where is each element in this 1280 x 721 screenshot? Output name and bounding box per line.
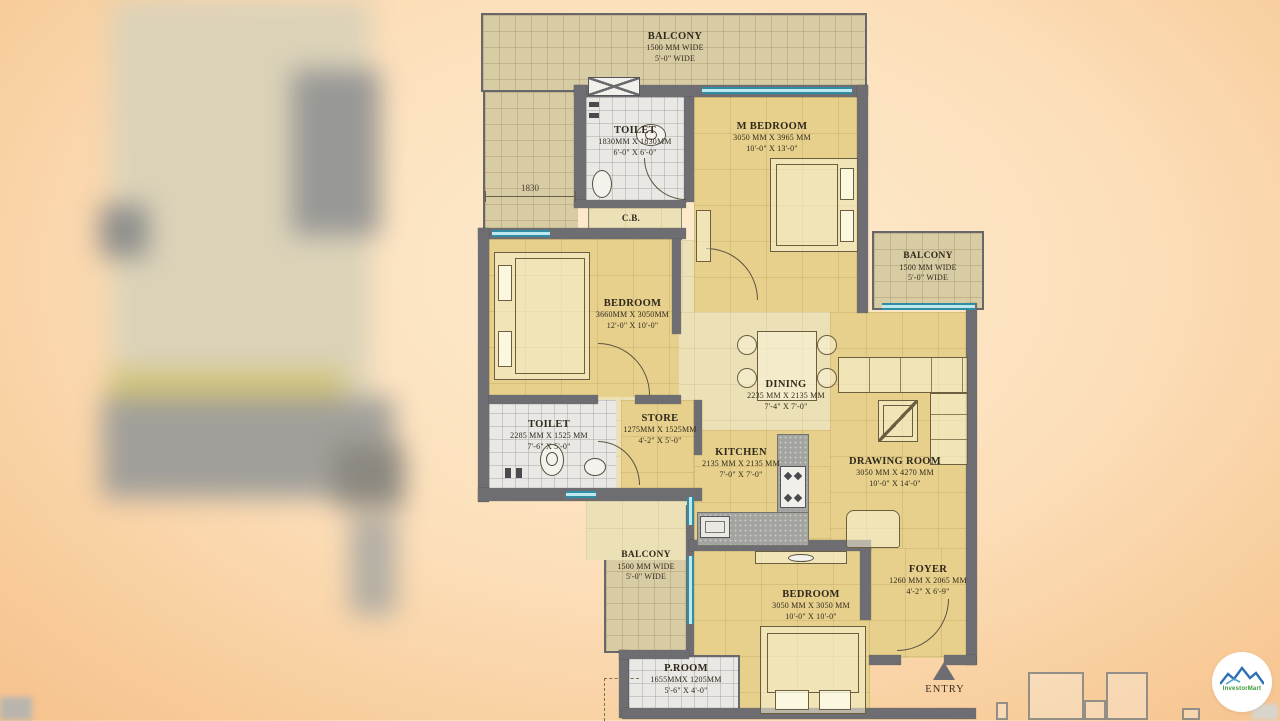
dimension-tick: [575, 191, 576, 202]
bed-inner: [776, 164, 838, 246]
armchair: [846, 510, 900, 548]
toilet-wc: [592, 170, 612, 198]
entry-label: ENTRY: [915, 684, 975, 695]
screenshot-root: { "colors": { "background_center": "#fde…: [0, 0, 1280, 720]
watermark-mountain-icon: [1220, 666, 1264, 686]
blur-shape: [100, 205, 148, 257]
tap-fitting: [505, 468, 511, 478]
sink-basin: [705, 521, 725, 533]
dimension-line: [486, 196, 576, 197]
wall: [489, 395, 598, 404]
dining-chair: [817, 368, 837, 388]
blur-shape: [292, 70, 380, 235]
dimension-tick: [485, 191, 486, 202]
balcony-top-left-extension: [483, 92, 578, 233]
dimension-label: 1830: [500, 183, 560, 193]
bed-inner: [767, 633, 859, 693]
key-plan-block: [996, 702, 1008, 720]
dining-table: [757, 331, 817, 401]
blur-shape: [334, 445, 404, 507]
watermark-text: InvestorMart: [1212, 686, 1272, 692]
pillow: [840, 210, 854, 242]
wall: [672, 239, 681, 334]
center-table: [878, 400, 918, 442]
wc-seat: [546, 452, 558, 466]
window: [687, 556, 694, 624]
wall: [694, 400, 702, 455]
sofa: [838, 357, 968, 393]
balcony-top-floor: [481, 13, 867, 92]
burner: [784, 472, 792, 480]
window: [687, 497, 694, 525]
key-plan-block: [1028, 672, 1084, 720]
sofa: [930, 393, 968, 465]
bed: [770, 158, 858, 252]
watermark-logo: InvestorMart: [1212, 652, 1272, 712]
key-plan-fragment: [0, 697, 32, 720]
shaft-x-icon: [588, 77, 640, 96]
shower-fitting: [589, 102, 599, 107]
pillow: [498, 331, 512, 367]
wall: [619, 650, 689, 659]
dresser-mirror: [788, 554, 814, 562]
center-table-inner: [883, 405, 913, 437]
dining-chair: [817, 335, 837, 355]
dresser: [755, 551, 847, 564]
pillow: [775, 690, 809, 710]
pillow: [840, 168, 854, 200]
pillow: [498, 265, 512, 301]
blurred-floorplan-background: [82, 0, 412, 640]
toilet-wc: [540, 444, 564, 476]
pillow: [819, 690, 851, 710]
dining-chair: [737, 368, 757, 388]
wall: [478, 228, 489, 502]
hob: [780, 466, 806, 508]
window: [882, 303, 975, 310]
burner: [794, 494, 802, 502]
dashed-boundary: [604, 678, 639, 721]
window: [566, 491, 596, 498]
window: [702, 87, 852, 94]
shower-fitting: [589, 113, 599, 118]
key-plan-block: [1084, 700, 1106, 720]
wall: [635, 395, 681, 404]
window: [492, 230, 550, 237]
bed-inner: [515, 258, 585, 374]
wall: [857, 85, 868, 313]
wardrobe: [696, 210, 711, 262]
key-plan-block: [1182, 708, 1200, 720]
tap-fitting: [516, 468, 522, 478]
sink: [700, 516, 730, 538]
burner: [794, 472, 802, 480]
bed: [494, 252, 590, 380]
bed: [760, 626, 866, 714]
blur-shape: [350, 515, 396, 615]
key-plan-block: [1106, 672, 1148, 720]
wall: [869, 655, 901, 665]
entry-arrow-icon: [933, 662, 955, 680]
dining-chair: [737, 335, 757, 355]
washbasin: [636, 124, 666, 146]
burner: [784, 494, 792, 502]
wall: [860, 548, 871, 620]
balcony-right-floor: [872, 231, 984, 310]
washbasin: [584, 458, 606, 476]
wall: [574, 85, 586, 207]
washbasin-bowl: [645, 130, 657, 140]
wall: [574, 200, 686, 208]
